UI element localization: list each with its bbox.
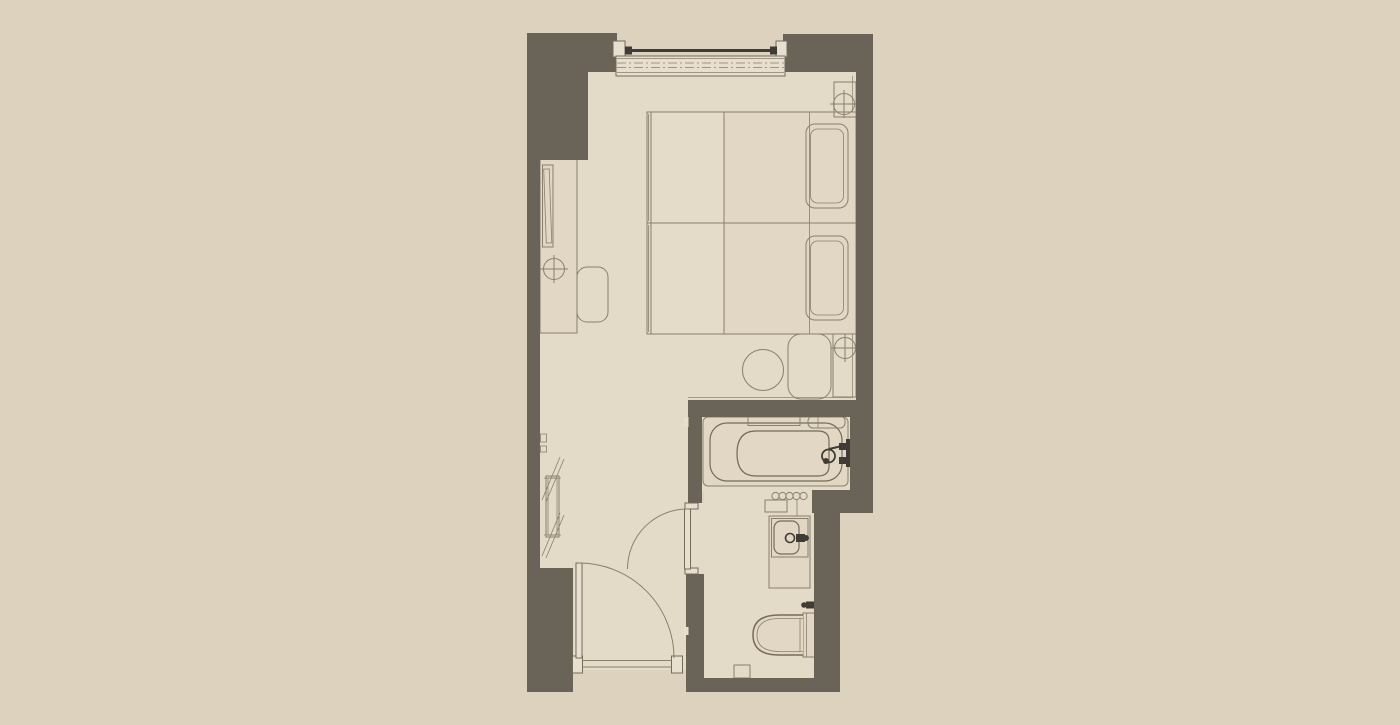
floor-plan-canvas	[0, 0, 1400, 725]
entry-threshold-tab-right	[672, 656, 683, 673]
desk	[540, 158, 577, 333]
wall-tick-1	[684, 417, 689, 427]
hall-floor-lower	[573, 560, 688, 670]
wall-top-left-b	[527, 33, 588, 160]
window-jamb-right	[776, 41, 787, 57]
duvet-1	[651, 112, 724, 223]
entry-threshold-tab-left	[573, 656, 583, 673]
wall-right-bedroom	[856, 72, 873, 402]
curtain-rod-end-right	[770, 47, 777, 55]
wall-right-bathroom	[814, 513, 840, 692]
floor-plan	[0, 0, 1400, 725]
wall-bath-left-upper	[688, 417, 702, 503]
duvet-2	[651, 223, 724, 334]
curtain-rod-end-left	[625, 47, 632, 55]
window-frame	[616, 56, 785, 76]
curtain-rod	[625, 49, 777, 52]
wall-top-right	[783, 34, 873, 72]
wall-bed-bath-divider	[688, 400, 873, 417]
bathroom-door-leaf	[685, 509, 691, 569]
toilet-bowl	[753, 615, 803, 655]
toilet	[753, 613, 818, 657]
entry-door-leaf	[576, 563, 582, 658]
window-jamb-left	[613, 41, 625, 57]
wall-left	[527, 158, 540, 568]
wall-step-band	[812, 490, 873, 513]
hall-floor-upper	[540, 400, 688, 570]
wall-bath-left-lower	[686, 574, 704, 692]
vanity-counter	[769, 516, 810, 588]
bathroom-door-frame-top	[685, 503, 698, 509]
wall-bottom-left-block	[527, 568, 573, 692]
wall-tick-2	[684, 627, 689, 635]
wall-bath-bottom	[686, 678, 840, 692]
